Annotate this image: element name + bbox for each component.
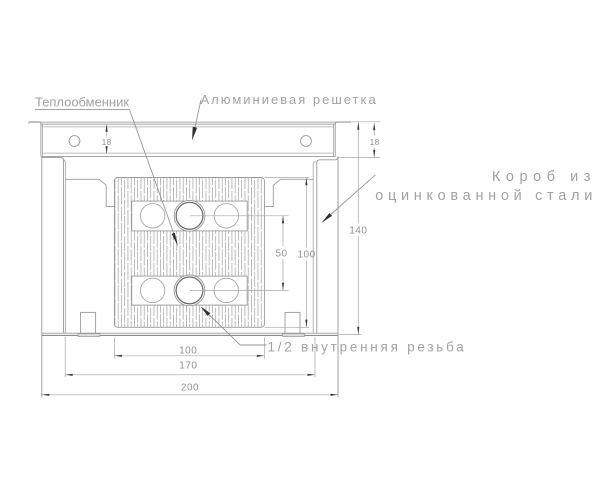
svg-text:200: 200 (181, 382, 199, 393)
svg-text:Теплообменник: Теплообменник (35, 95, 129, 110)
svg-text:18: 18 (370, 137, 380, 147)
svg-text:Алюминиевая решетка: Алюминиевая решетка (201, 92, 378, 107)
svg-text:100: 100 (298, 250, 316, 261)
svg-text:170: 170 (179, 361, 197, 372)
svg-text:140: 140 (349, 226, 367, 237)
svg-text:оцинкованной стали: оцинкованной стали (375, 188, 597, 204)
svg-text:18: 18 (102, 137, 112, 147)
svg-text:100: 100 (179, 345, 197, 356)
svg-text:50: 50 (275, 248, 287, 259)
svg-text:1/2 внутренняя резьба: 1/2 внутренняя резьба (268, 340, 467, 355)
svg-text:Короб из: Короб из (492, 169, 596, 185)
